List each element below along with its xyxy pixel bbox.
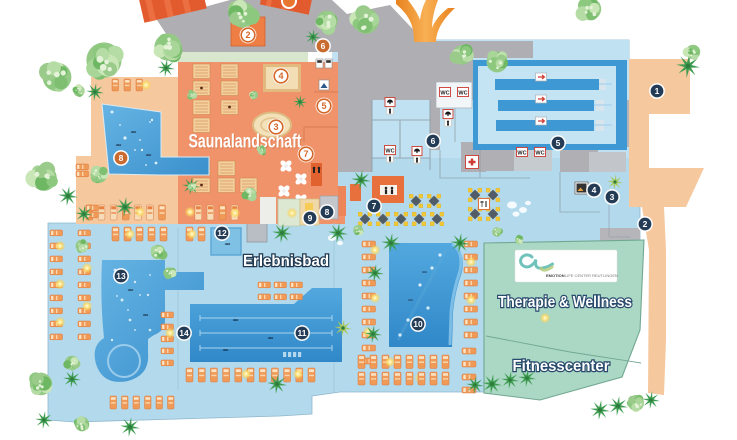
svg-text:Therapie & Wellness: Therapie & Wellness xyxy=(498,294,632,311)
svg-text:5: 5 xyxy=(556,138,561,148)
svg-text:Saunalandschaft: Saunalandschaft xyxy=(189,132,302,153)
svg-text:6: 6 xyxy=(321,41,326,51)
svg-text:10: 10 xyxy=(413,319,423,329)
svg-text:Erlebnisbad: Erlebnisbad xyxy=(243,253,329,270)
svg-text:LIFE CENTER REUTLINGEN: LIFE CENTER REUTLINGEN xyxy=(565,273,618,278)
svg-text:2: 2 xyxy=(643,219,648,229)
svg-text:13: 13 xyxy=(116,271,126,281)
svg-text:WC: WC xyxy=(385,149,394,155)
svg-text:EMOTION: EMOTION xyxy=(546,273,565,278)
svg-text:WC: WC xyxy=(458,91,467,97)
svg-text:6: 6 xyxy=(431,136,436,146)
svg-text:2: 2 xyxy=(245,30,250,40)
svg-text:WC: WC xyxy=(535,151,544,157)
svg-text:12: 12 xyxy=(217,228,227,238)
svg-text:14: 14 xyxy=(179,328,189,338)
svg-text:4: 4 xyxy=(278,71,283,81)
svg-text:WC: WC xyxy=(517,151,526,157)
svg-text:3: 3 xyxy=(610,192,615,202)
svg-text:3: 3 xyxy=(273,122,278,132)
svg-text:9: 9 xyxy=(308,213,313,223)
svg-text:1: 1 xyxy=(655,86,660,96)
svg-text:7: 7 xyxy=(303,149,308,159)
svg-text:5: 5 xyxy=(321,101,326,111)
svg-text:7: 7 xyxy=(372,201,377,211)
svg-text:4: 4 xyxy=(592,185,597,195)
svg-text:8: 8 xyxy=(119,153,124,163)
svg-text:8: 8 xyxy=(325,207,330,217)
svg-text:Fitnesscenter: Fitnesscenter xyxy=(513,358,610,375)
svg-text:WC: WC xyxy=(440,91,449,97)
svg-text:11: 11 xyxy=(298,328,307,338)
